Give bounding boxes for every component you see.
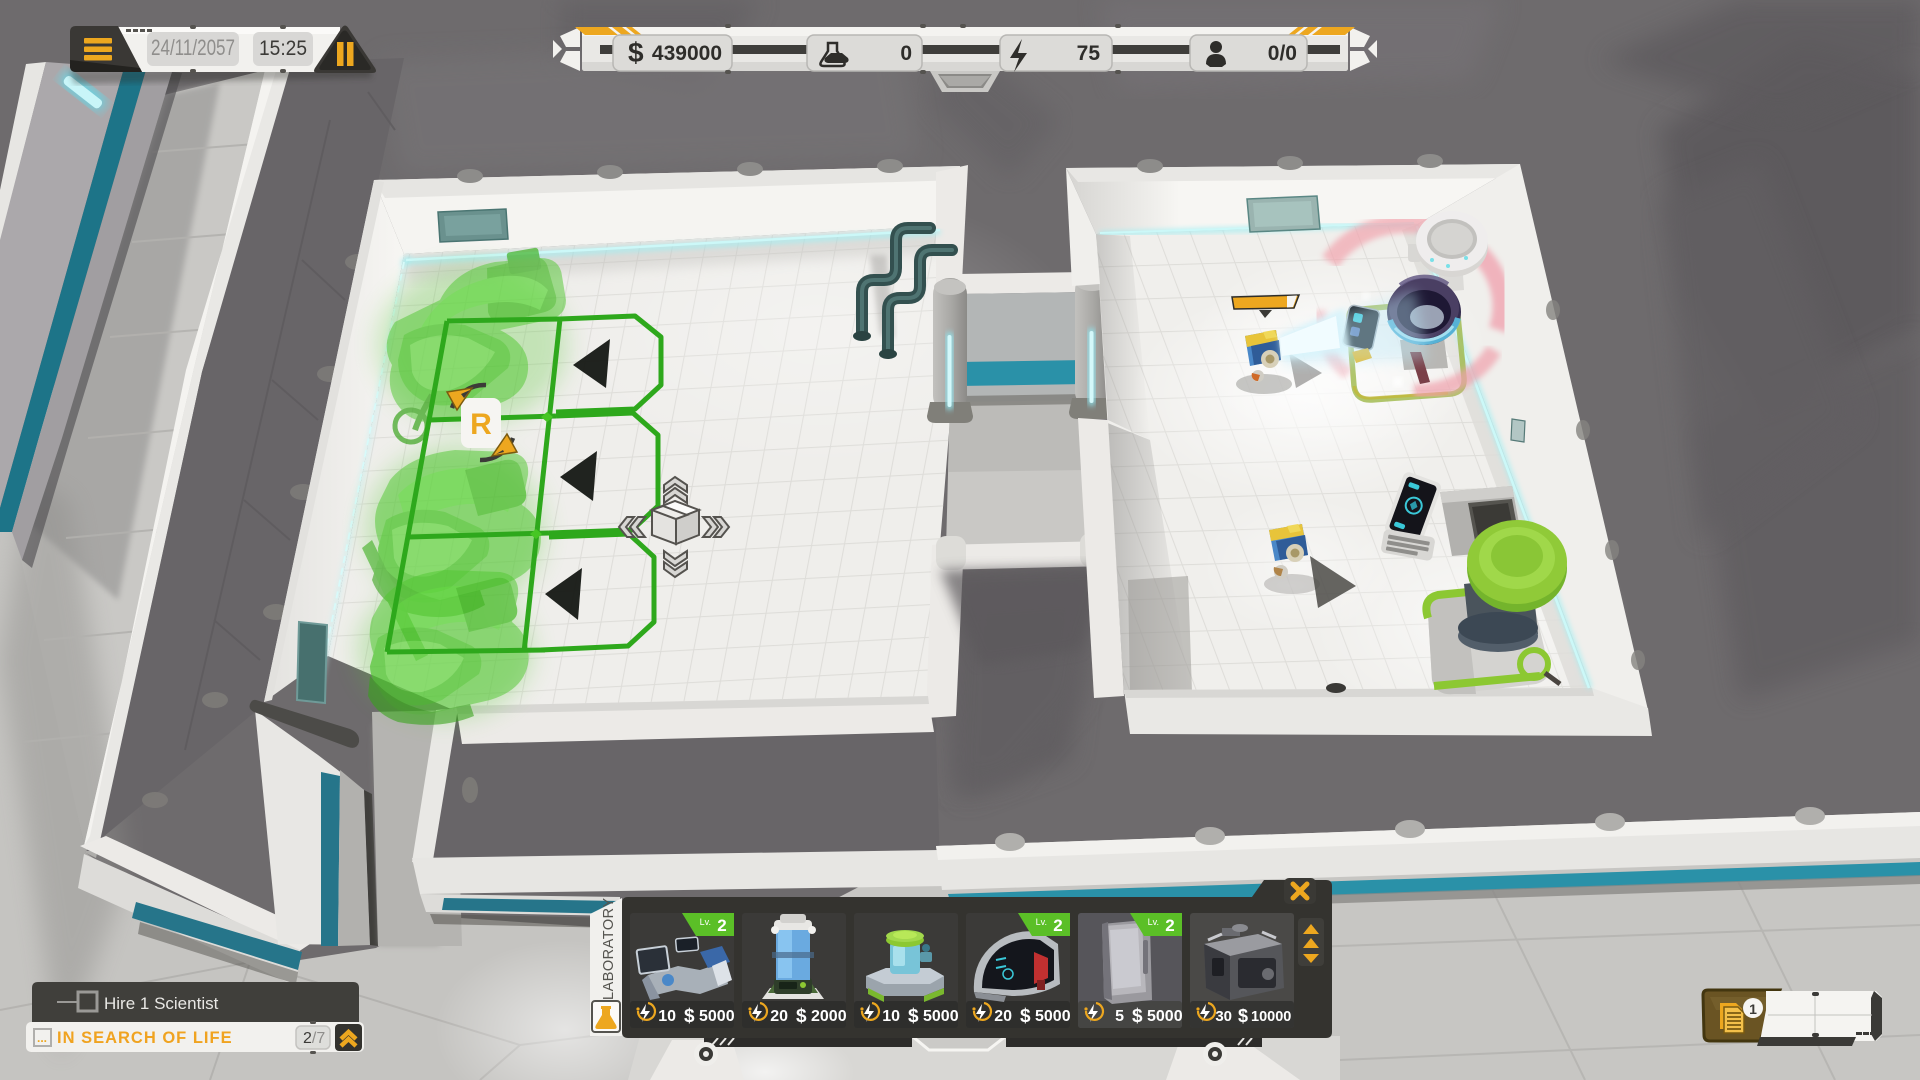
svg-text:2: 2 — [1165, 916, 1174, 935]
svg-text:2: 2 — [1053, 916, 1062, 935]
svg-text:30: 30 — [1215, 1008, 1232, 1025]
svg-text:5000: 5000 — [699, 1008, 735, 1025]
svg-text:0: 0 — [900, 42, 912, 65]
svg-text:Lv.: Lv. — [1148, 917, 1159, 927]
svg-text:$: $ — [1020, 1006, 1031, 1027]
svg-text:$: $ — [796, 1006, 807, 1027]
svg-text:5000: 5000 — [923, 1008, 959, 1025]
svg-text:IN SEARCH OF LIFE: IN SEARCH OF LIFE — [57, 1029, 233, 1047]
svg-text:Hire 1 Scientist: Hire 1 Scientist — [104, 994, 219, 1013]
svg-text:10: 10 — [658, 1008, 676, 1025]
svg-text:2/7: 2/7 — [303, 1030, 325, 1047]
svg-text:LABORATORY: LABORATORY — [601, 897, 617, 1000]
svg-text:Lv.: Lv. — [1036, 917, 1047, 927]
svg-text:10000: 10000 — [1251, 1009, 1291, 1025]
svg-text:0/0: 0/0 — [1268, 42, 1297, 65]
svg-text:15:25: 15:25 — [259, 37, 307, 60]
svg-text:$: $ — [908, 1006, 919, 1027]
svg-text:24/11/2057: 24/11/2057 — [151, 35, 235, 60]
svg-text:$: $ — [684, 1006, 695, 1027]
svg-text:2: 2 — [717, 916, 726, 935]
svg-text:$: $ — [628, 37, 644, 68]
svg-text:20: 20 — [994, 1008, 1012, 1025]
svg-text:20: 20 — [770, 1008, 788, 1025]
svg-text:$: $ — [1238, 1006, 1248, 1026]
svg-text:1: 1 — [1749, 1001, 1757, 1017]
svg-text:5000: 5000 — [1147, 1008, 1183, 1025]
svg-text:75: 75 — [1077, 42, 1101, 65]
svg-text:10: 10 — [882, 1008, 900, 1025]
svg-text:5: 5 — [1115, 1008, 1124, 1025]
svg-text:$: $ — [1132, 1006, 1143, 1027]
svg-text:439000: 439000 — [652, 42, 722, 65]
svg-text:R: R — [470, 408, 492, 441]
svg-text:5000: 5000 — [1035, 1008, 1071, 1025]
svg-text:Lv.: Lv. — [700, 917, 711, 927]
svg-text:...: ... — [37, 1031, 47, 1045]
svg-text:2000: 2000 — [811, 1008, 847, 1025]
